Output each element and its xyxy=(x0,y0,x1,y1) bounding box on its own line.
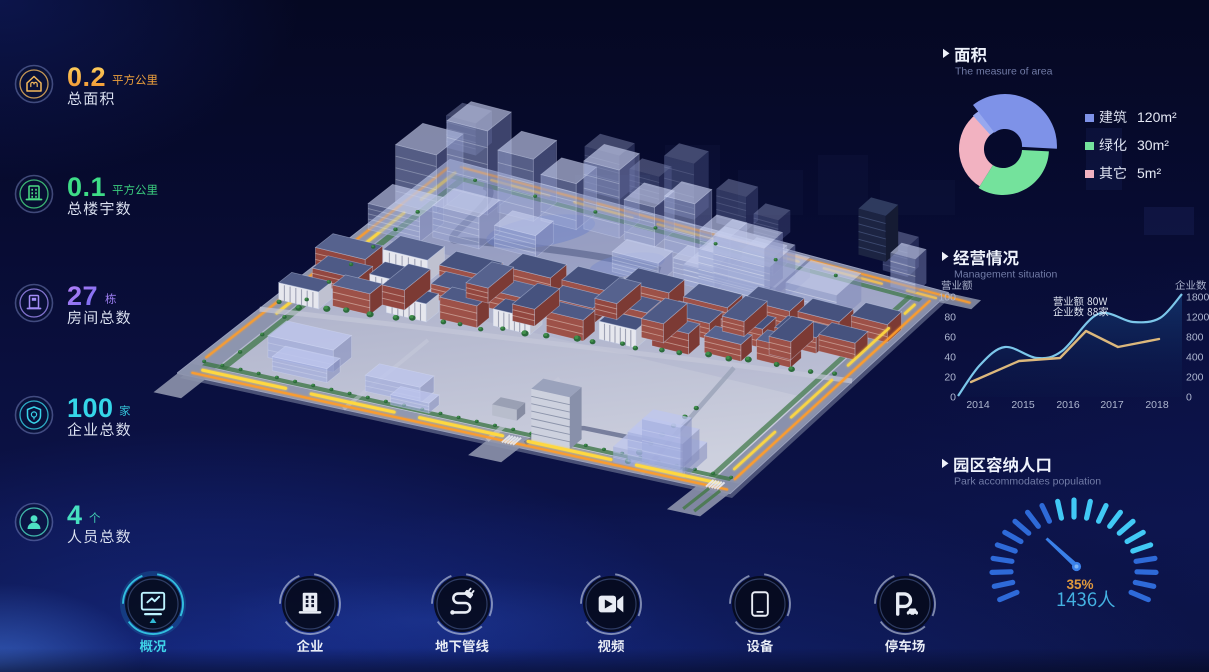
svg-text:60: 60 xyxy=(944,332,956,344)
svg-text:1200: 1200 xyxy=(1186,312,1209,324)
svg-text:0: 0 xyxy=(950,392,956,404)
svg-text:100: 100 xyxy=(67,393,114,423)
svg-text:2016: 2016 xyxy=(1056,399,1080,411)
svg-text:120m²: 120m² xyxy=(1137,109,1177,125)
svg-text:2015: 2015 xyxy=(1011,399,1035,411)
svg-text:Management situation: Management situation xyxy=(954,269,1057,281)
svg-text:2018: 2018 xyxy=(1145,399,1169,411)
svg-text:0: 0 xyxy=(1186,392,1192,404)
svg-text:2014: 2014 xyxy=(966,399,990,411)
svg-text:4: 4 xyxy=(67,500,83,530)
svg-text:400: 400 xyxy=(1186,352,1204,364)
svg-text:0.1: 0.1 xyxy=(67,172,106,202)
svg-text:0.2: 0.2 xyxy=(67,62,106,92)
svg-text:30m²: 30m² xyxy=(1137,137,1169,153)
svg-text:2017: 2017 xyxy=(1100,399,1124,411)
svg-text:5m²: 5m² xyxy=(1137,165,1161,181)
svg-text:1800: 1800 xyxy=(1186,292,1209,304)
svg-text:27: 27 xyxy=(67,281,98,311)
svg-text:80: 80 xyxy=(944,312,956,324)
svg-text:35%: 35% xyxy=(1066,577,1093,592)
svg-text:800: 800 xyxy=(1186,332,1204,344)
svg-text:200: 200 xyxy=(1186,372,1204,384)
svg-text:The measure of area: The measure of area xyxy=(955,66,1053,78)
svg-text:100: 100 xyxy=(938,292,956,304)
svg-text:Park accommodates population: Park accommodates population xyxy=(954,476,1101,488)
svg-text:20: 20 xyxy=(944,372,956,384)
svg-text:40: 40 xyxy=(944,352,956,364)
